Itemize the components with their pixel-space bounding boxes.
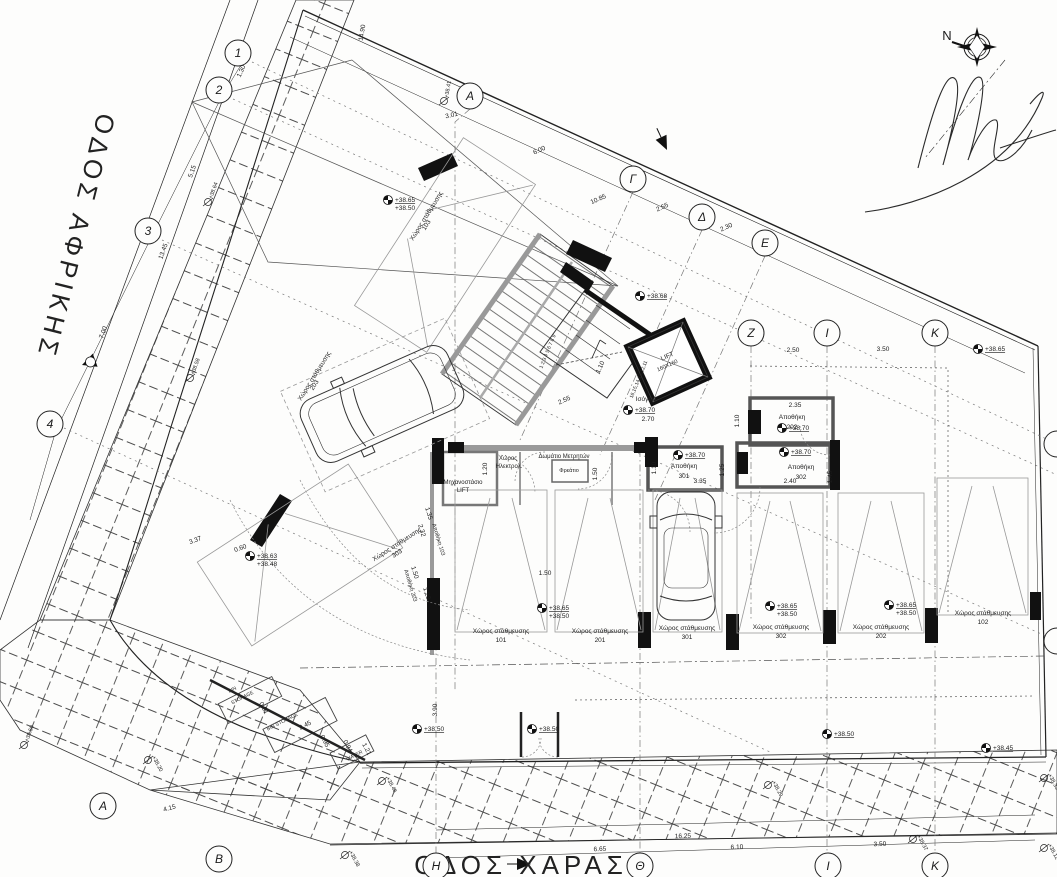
- level-value: +38.50: [834, 731, 854, 738]
- grid-bubble-label: Γ: [630, 172, 638, 186]
- grid-bubble-label: Κ: [931, 859, 940, 873]
- grid-bubble-2: 2: [206, 77, 232, 103]
- dimension-text: 6.10: [731, 844, 744, 851]
- grid-bubble-Β: Β: [206, 846, 232, 872]
- door-arcs: [230, 425, 830, 757]
- level-marker: +38.68: [636, 292, 668, 301]
- parking-space-name: Χώρος στάθμευσης: [753, 623, 809, 631]
- annotation: LIFT: [457, 488, 470, 494]
- grid-bubble-edge: [1044, 431, 1057, 457]
- level-value: +38.70: [635, 407, 655, 414]
- parking-space-number: 202: [876, 633, 887, 640]
- parking-space-303: Χώρος στάθμευσης303: [371, 526, 423, 563]
- annotation: Ισόγειο: [636, 395, 657, 403]
- level-value: +38.45: [993, 745, 1013, 752]
- parking-space-name: Χώρος στάθμευσης: [473, 627, 529, 635]
- parking-stalls: [197, 138, 1028, 646]
- grid-bubble-label: Κ: [931, 326, 940, 340]
- level-value: +38.50: [539, 726, 559, 733]
- level-value: +38.50: [395, 205, 415, 212]
- dimension-text: 2.35: [789, 402, 802, 409]
- parking-space-302: Χώρος στάθμευσης302: [753, 623, 809, 640]
- grid-bubble-label: Ζ: [746, 326, 755, 340]
- north-label: N: [942, 28, 951, 43]
- grid-bubble-label: Η: [432, 859, 441, 873]
- annotation: Χώρος: [499, 456, 517, 462]
- dimension-text: 1.10: [734, 414, 741, 427]
- level-marker: +38.70: [674, 451, 706, 460]
- grid-bubble-Κ: Κ: [922, 853, 948, 877]
- dimension-text: 1.25: [719, 463, 726, 476]
- dimension-text: 10.85: [590, 193, 608, 206]
- grid-bubble-Ι: Ι: [815, 853, 841, 877]
- dimension-text: 16.25: [675, 833, 692, 841]
- dimension-text: 3.01: [445, 111, 459, 121]
- grid-bubble-label: 2: [215, 83, 223, 97]
- spot-level-value: +38.38: [347, 850, 360, 868]
- parking-space-number: 201: [595, 637, 606, 644]
- level-value: +38.70: [791, 449, 811, 456]
- grid-bubble-label: Θ: [635, 859, 644, 873]
- floor-plan-sheet: ΟΔΟΣ ΑΦΡΙΚΗΣΟΔΟΣ ΧΑΡΑΣN 1234ΑΓΔΕΖΙΚΗΘΙΚΑ…: [0, 0, 1057, 877]
- grid-bubble-Δ: Δ: [689, 204, 715, 230]
- dimension-text: 7.00: [98, 325, 109, 340]
- level-value: +38.68: [647, 293, 667, 300]
- storage-room-number: 202: [787, 424, 798, 431]
- dimension-text: 3.37: [188, 535, 203, 546]
- parking-space-number: 302: [776, 633, 787, 640]
- dimension-text: 3.50: [874, 841, 887, 848]
- parking-space-name: Χώρος στάθμευσης: [853, 623, 909, 631]
- gate: [521, 712, 558, 757]
- dimension-text: 0.60: [233, 543, 248, 554]
- canopy-outline: [192, 60, 1046, 700]
- grid-bubble-label: Α: [98, 799, 107, 813]
- parking-space-102: Χώρος στάθμευσης102: [955, 609, 1011, 626]
- level-marker: +38.50: [823, 730, 855, 739]
- level-marker: +38.50: [413, 725, 445, 734]
- dimension-text: 1.45: [827, 470, 834, 483]
- grid-bubble-label: 3: [145, 224, 152, 238]
- parking-space-number: 102: [978, 619, 989, 626]
- level-marker: +38.63+38.48: [246, 552, 278, 569]
- grid-bubble-edge: [1044, 628, 1057, 654]
- parking-space-name: Χώρος στάθμευσης: [659, 624, 715, 632]
- dimension-text: 3.90: [432, 703, 439, 716]
- level-value: +38.50: [896, 610, 916, 617]
- dimension-text: 6.65: [594, 846, 607, 853]
- grid-bubble-Κ: Κ: [922, 320, 948, 346]
- grid-bubble-Η: Η: [423, 853, 449, 877]
- parking-space-name: Χώρος στάθμευσης: [572, 627, 628, 635]
- dimension-text: 2.55: [557, 395, 572, 407]
- dimension-text: 5.15: [187, 164, 198, 179]
- storage-room-name: Αποθήκη: [788, 464, 815, 471]
- dimension-text: 1.10: [595, 360, 607, 375]
- annotation: Μηχανοστάσιο: [444, 479, 484, 486]
- spot-level: +38.37: [908, 834, 929, 852]
- level-value: +38.65: [985, 346, 1005, 353]
- parking-space-203: Χώρος στάθμευσης203: [296, 350, 333, 402]
- level-marker: +38.65+38.50: [384, 196, 416, 213]
- grid-bubble-label: Ε: [761, 236, 770, 250]
- level-value: +38.65: [549, 605, 569, 612]
- dimension-text: 6.00: [532, 145, 547, 157]
- level-value: +38.70: [685, 452, 705, 459]
- storage-room-name: Αποθήκη: [671, 463, 698, 470]
- parking-space-202: Χώρος στάθμευσης202: [853, 623, 909, 640]
- grid-bubble-4: 4: [37, 411, 63, 437]
- level-value: +38.65: [896, 602, 916, 609]
- level-marker: +38.45: [982, 744, 1014, 753]
- parking-space-number: 301: [682, 634, 693, 641]
- dimension-text: 2.30: [719, 222, 734, 234]
- parking-space-201: Χώρος στάθμευσης201: [572, 627, 628, 644]
- level-value: +38.65: [777, 603, 797, 610]
- level-marker: +38.50: [528, 725, 560, 734]
- dimension-text: 2.55: [655, 202, 670, 214]
- level-value: +38.50: [424, 726, 444, 733]
- section-arrow-left: [80, 354, 98, 372]
- grid-bubble-Ι: Ι: [814, 320, 840, 346]
- spot-level: +38.12: [1039, 843, 1057, 861]
- grid-bubble-Ζ: Ζ: [738, 320, 764, 346]
- walls-gray: [432, 398, 833, 655]
- dimension-text: 3.50: [877, 346, 890, 353]
- grid-bubble-label: 1: [235, 46, 242, 60]
- parking-space-name: Χώρος στάθμευσης: [296, 350, 333, 402]
- level-marker: +38.70: [624, 406, 656, 415]
- dimension-text: 13.45: [158, 242, 170, 260]
- spot-level: +38.41: [439, 81, 453, 105]
- section-arrow-top: [651, 126, 672, 153]
- north-arrow: [952, 27, 997, 67]
- storage-room-number: 301: [679, 473, 690, 480]
- parking-space-name: Χώρος στάθμευσης: [955, 609, 1011, 617]
- grid-bubble-label: Β: [215, 852, 223, 866]
- level-marker: +38.65: [974, 345, 1006, 354]
- storage-room-number: 302: [796, 474, 807, 481]
- parking-space-101: Χώρος στάθμευσης101: [473, 627, 529, 644]
- storage-room-name: Αποθήκη: [779, 414, 806, 421]
- grid-bubble-Ε: Ε: [752, 230, 778, 256]
- annotation: Ηλεκτρολ.: [496, 464, 523, 470]
- dimension-text: 2.50: [787, 347, 800, 354]
- grid-bubble-Α: Α: [90, 793, 116, 819]
- parking-space-number: 101: [496, 637, 507, 644]
- level-value: +38.50: [777, 611, 797, 618]
- parking-space-301: Χώρος στάθμευσης301: [659, 624, 715, 641]
- grid-bubble-3: 3: [135, 218, 161, 244]
- grid-bubble-Α: Α: [457, 83, 483, 109]
- annotation: Φρεάτιο: [559, 467, 579, 474]
- level-value: +38.50: [549, 613, 569, 620]
- annotation: Δωμάτιο Μετρητών: [538, 453, 589, 460]
- level-value: +38.63: [257, 553, 277, 560]
- grid-bubble-label: 4: [47, 417, 54, 431]
- floor-plan-drawing: ΟΔΟΣ ΑΦΡΙΚΗΣΟΔΟΣ ΧΑΡΑΣN 1234ΑΓΔΕΖΙΚΗΘΙΚΑ…: [0, 0, 1057, 877]
- grid-bubble-Γ: Γ: [620, 166, 646, 192]
- dimension-text: 2.70: [642, 416, 655, 423]
- level-marker: +38.70: [780, 448, 812, 457]
- spot-level-value: +38.12: [1046, 843, 1057, 861]
- level-marker: +38.65+38.50: [766, 602, 798, 619]
- spot-level-value: +38.41: [444, 81, 453, 99]
- grid-bubble-1: 1: [225, 40, 251, 66]
- dimension-text: 1.10: [651, 461, 658, 474]
- signature: [865, 60, 1056, 212]
- dimension-text: 1.20: [482, 462, 489, 475]
- dimension-text: 4.15: [163, 803, 177, 813]
- spot-level: +38.38: [340, 850, 361, 868]
- level-value: +38.65: [395, 197, 415, 204]
- grid-bubble-label: Α: [465, 89, 474, 103]
- grid-bubble-label: Δ: [697, 210, 706, 224]
- dimension-text: 3.35: [694, 478, 707, 485]
- dimension-text: 1.50: [592, 467, 599, 480]
- level-value: +38.48: [257, 561, 277, 568]
- dimension-text: 1.50: [539, 570, 552, 577]
- grid-bubble-Θ: Θ: [627, 853, 653, 877]
- level-marker: +38.65+38.50: [885, 601, 917, 618]
